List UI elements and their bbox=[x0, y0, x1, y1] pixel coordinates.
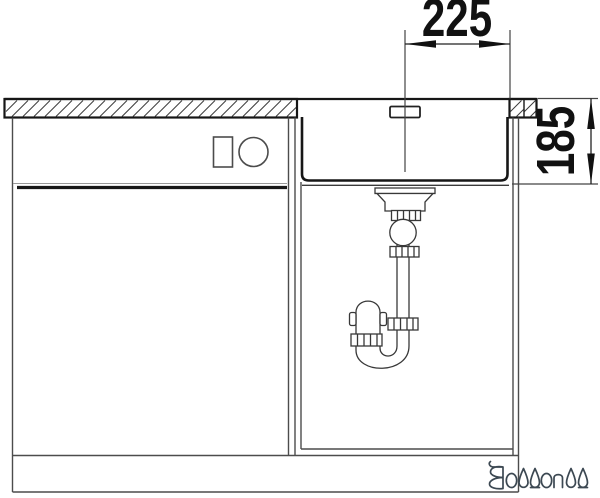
siphon-dome-top bbox=[356, 301, 380, 312]
drain-flange-plate bbox=[375, 188, 435, 194]
left-cabinet-front bbox=[13, 137, 287, 188]
drain-flange-body bbox=[377, 194, 433, 212]
siphon-u-bend bbox=[350, 257, 419, 368]
siphon-side-nub-right bbox=[380, 313, 387, 326]
dim-185-arrow-top bbox=[587, 99, 595, 130]
dim-185-label: 185 bbox=[526, 106, 586, 176]
logo-glyph-n bbox=[554, 475, 563, 488]
dim-185-arrow-bottom bbox=[587, 154, 595, 185]
countertop bbox=[5, 99, 537, 118]
drain-and-trap bbox=[350, 188, 436, 368]
logo-glyph-b-mirrored bbox=[489, 462, 503, 489]
countertop-hatch-lines bbox=[6, 101, 536, 117]
logo-glyph-drop2 bbox=[531, 469, 540, 488]
logo-glyph-drop3 bbox=[567, 469, 576, 488]
control-knob-circle bbox=[239, 138, 268, 167]
sink-bowl bbox=[5, 99, 537, 185]
logo-glyph-o1 bbox=[506, 474, 516, 488]
hatch-line bbox=[511, 101, 522, 112]
hatch-line bbox=[517, 110, 524, 117]
siphon-right-nut bbox=[388, 318, 418, 330]
hatch-line bbox=[6, 101, 17, 112]
blanco-watermark-logo bbox=[489, 462, 587, 489]
dim-225-label: 225 bbox=[422, 0, 492, 48]
control-handle-rectangle bbox=[214, 137, 233, 167]
siphon-side-nub-left bbox=[350, 313, 357, 326]
logo-glyph-o2 bbox=[541, 474, 551, 488]
sink-installation-diagram: 225 185 bbox=[0, 0, 600, 498]
dimension-225: 225 bbox=[405, 0, 510, 172]
cabinet-carcass bbox=[13, 118, 519, 493]
siphon-left-nut bbox=[351, 334, 382, 346]
tailpiece-lower-nut bbox=[390, 247, 419, 258]
hatch-line bbox=[287, 108, 296, 117]
logo-glyph-drop1 bbox=[519, 469, 528, 488]
overflow-ball-joint bbox=[390, 219, 416, 245]
logo-glyph-drop4 bbox=[579, 469, 588, 488]
